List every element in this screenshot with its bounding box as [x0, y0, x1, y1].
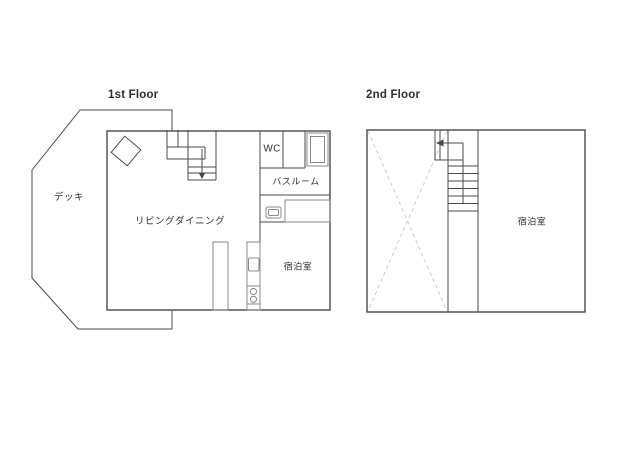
kitchen-sink	[249, 258, 260, 271]
living-room-table	[111, 136, 141, 166]
first-floor-title: 1st Floor	[108, 89, 158, 101]
second-floor-outer-wall	[367, 130, 585, 312]
staircase-second-floor	[435, 130, 478, 211]
stove-burner	[250, 296, 256, 302]
second-floor-plan	[367, 130, 585, 312]
stair-down-arrow-icon	[199, 173, 206, 180]
vanity-counter	[285, 200, 330, 222]
guest-room-label-second-floor: 宿泊室	[518, 215, 547, 228]
wc-label: WC	[263, 144, 280, 155]
deck-label: デッキ	[54, 189, 84, 203]
guest-room-label-first-floor: 宿泊室	[284, 260, 313, 273]
floor-plan-canvas: 1st Floor 2nd Floor デッキ リビングダイニング WC バスル…	[0, 0, 640, 452]
washbasin	[266, 207, 281, 218]
second-floor-title: 2nd Floor	[366, 89, 420, 101]
staircase-first-floor	[167, 130, 216, 180]
bathtub	[307, 133, 328, 166]
bathroom-label: バスルーム	[272, 175, 319, 188]
first-floor-partition-walls	[260, 131, 330, 310]
stove-burner	[250, 288, 256, 294]
kitchen-island	[213, 242, 228, 310]
living-dining-label: リビングダイニング	[135, 213, 225, 227]
kitchen-counter	[247, 242, 260, 310]
